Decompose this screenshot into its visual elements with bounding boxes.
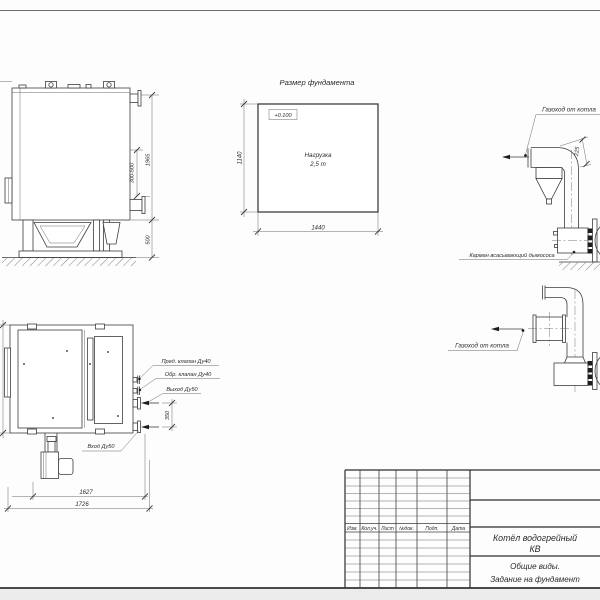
col-list: Лист xyxy=(380,526,394,532)
boiler-plan-view: Пред. клапан Ду40 Обр. клапан Ду40 Выход… xyxy=(0,320,220,512)
burner-motor xyxy=(59,459,74,475)
flue-duct-front-view: Газоход от котла xyxy=(448,286,600,393)
burner-assembly xyxy=(41,433,73,479)
boiler-body xyxy=(12,88,130,220)
dim-offset-label: 225 xyxy=(574,146,581,158)
boiler-flue-connection-box xyxy=(528,312,572,346)
boiler-side-view: 300-500 1965 500 xyxy=(0,82,159,267)
top-cover-panel xyxy=(18,330,82,428)
col-data: Дата xyxy=(451,526,465,532)
ground-hatching xyxy=(2,258,136,267)
rear-cover-panel xyxy=(95,337,123,424)
suction-pocket-front xyxy=(554,350,600,392)
level-mark: +0.100 xyxy=(274,113,292,119)
outlet-label: Выход Ду50 xyxy=(166,387,198,393)
dim-base-height-label: 500 xyxy=(146,234,152,244)
col-izm: Изм. xyxy=(347,526,358,532)
check-valve-label: Обр. клапан Ду40 xyxy=(165,372,212,378)
ground-hatching-flue xyxy=(559,262,600,270)
cad-drawing-canvas: 300-500 1965 500 Размер фундамента +0.10… xyxy=(0,0,600,600)
col-koluch: Кол.уч. xyxy=(361,526,377,532)
dim-range-label: 300-500 xyxy=(130,162,136,183)
doc-type-line2: Задание на фундамент xyxy=(490,575,580,584)
dim-width-label: 1440 xyxy=(311,226,325,232)
product-name-line1: Котёл водогрейный xyxy=(493,533,577,543)
dim-350: 350 xyxy=(162,399,177,431)
pocket-label: Карман всасывающий дымососа xyxy=(469,252,554,259)
load-text-line1: Нагрузка xyxy=(305,152,332,159)
title-block-headers: Изм. Кол.уч. Лист №док. Подп. Дата xyxy=(347,526,465,532)
return-pipe-flange xyxy=(130,197,145,214)
dim-225: 225 xyxy=(560,137,591,168)
load-text-line2: 2,5 т xyxy=(309,161,326,168)
dim-total-height-label: 1965 xyxy=(146,153,152,166)
foundation-title: Размер фундамента xyxy=(280,78,355,87)
suction-pocket xyxy=(552,219,600,262)
col-podp: Подп. xyxy=(425,526,438,532)
support-frame xyxy=(19,220,122,258)
title-block: Изм. Кол.уч. Лист №док. Подп. Дата Котёл… xyxy=(345,470,600,588)
dim-ports-label: 350 xyxy=(165,410,171,420)
doc-type-line1: Общие виды. xyxy=(510,562,560,571)
valve-ports xyxy=(133,376,159,433)
col-ndok: №док. xyxy=(399,526,414,532)
product-name-line2: КВ xyxy=(529,544,540,554)
inlet-label: Вход Ду50 xyxy=(87,444,115,450)
lifting-lugs xyxy=(19,82,115,89)
foundation-plan: Размер фундамента +0.100 Нагрузка 2,5 т … xyxy=(238,78,384,236)
safety-valve-label: Пред. клапан Ду40 xyxy=(161,359,211,365)
dim-depth-label: 1140 xyxy=(238,151,244,165)
outlet-pipe-flange xyxy=(130,91,141,107)
dim-outer-label: 1726 xyxy=(75,502,89,508)
flue-duct-side-view: Газоход от котла 225 xyxy=(459,106,600,271)
flue-label-top: Газоход от котла xyxy=(542,106,596,114)
cyclone-cone xyxy=(536,168,562,205)
drawing-sheet: 300-500 1965 500 Размер фундамента +0.10… xyxy=(0,0,600,600)
plan-dimensions: 1627 1726 xyxy=(4,434,153,512)
flue-label-front: Газоход от котла xyxy=(455,342,509,350)
dim-inner-label: 1627 xyxy=(79,490,93,496)
